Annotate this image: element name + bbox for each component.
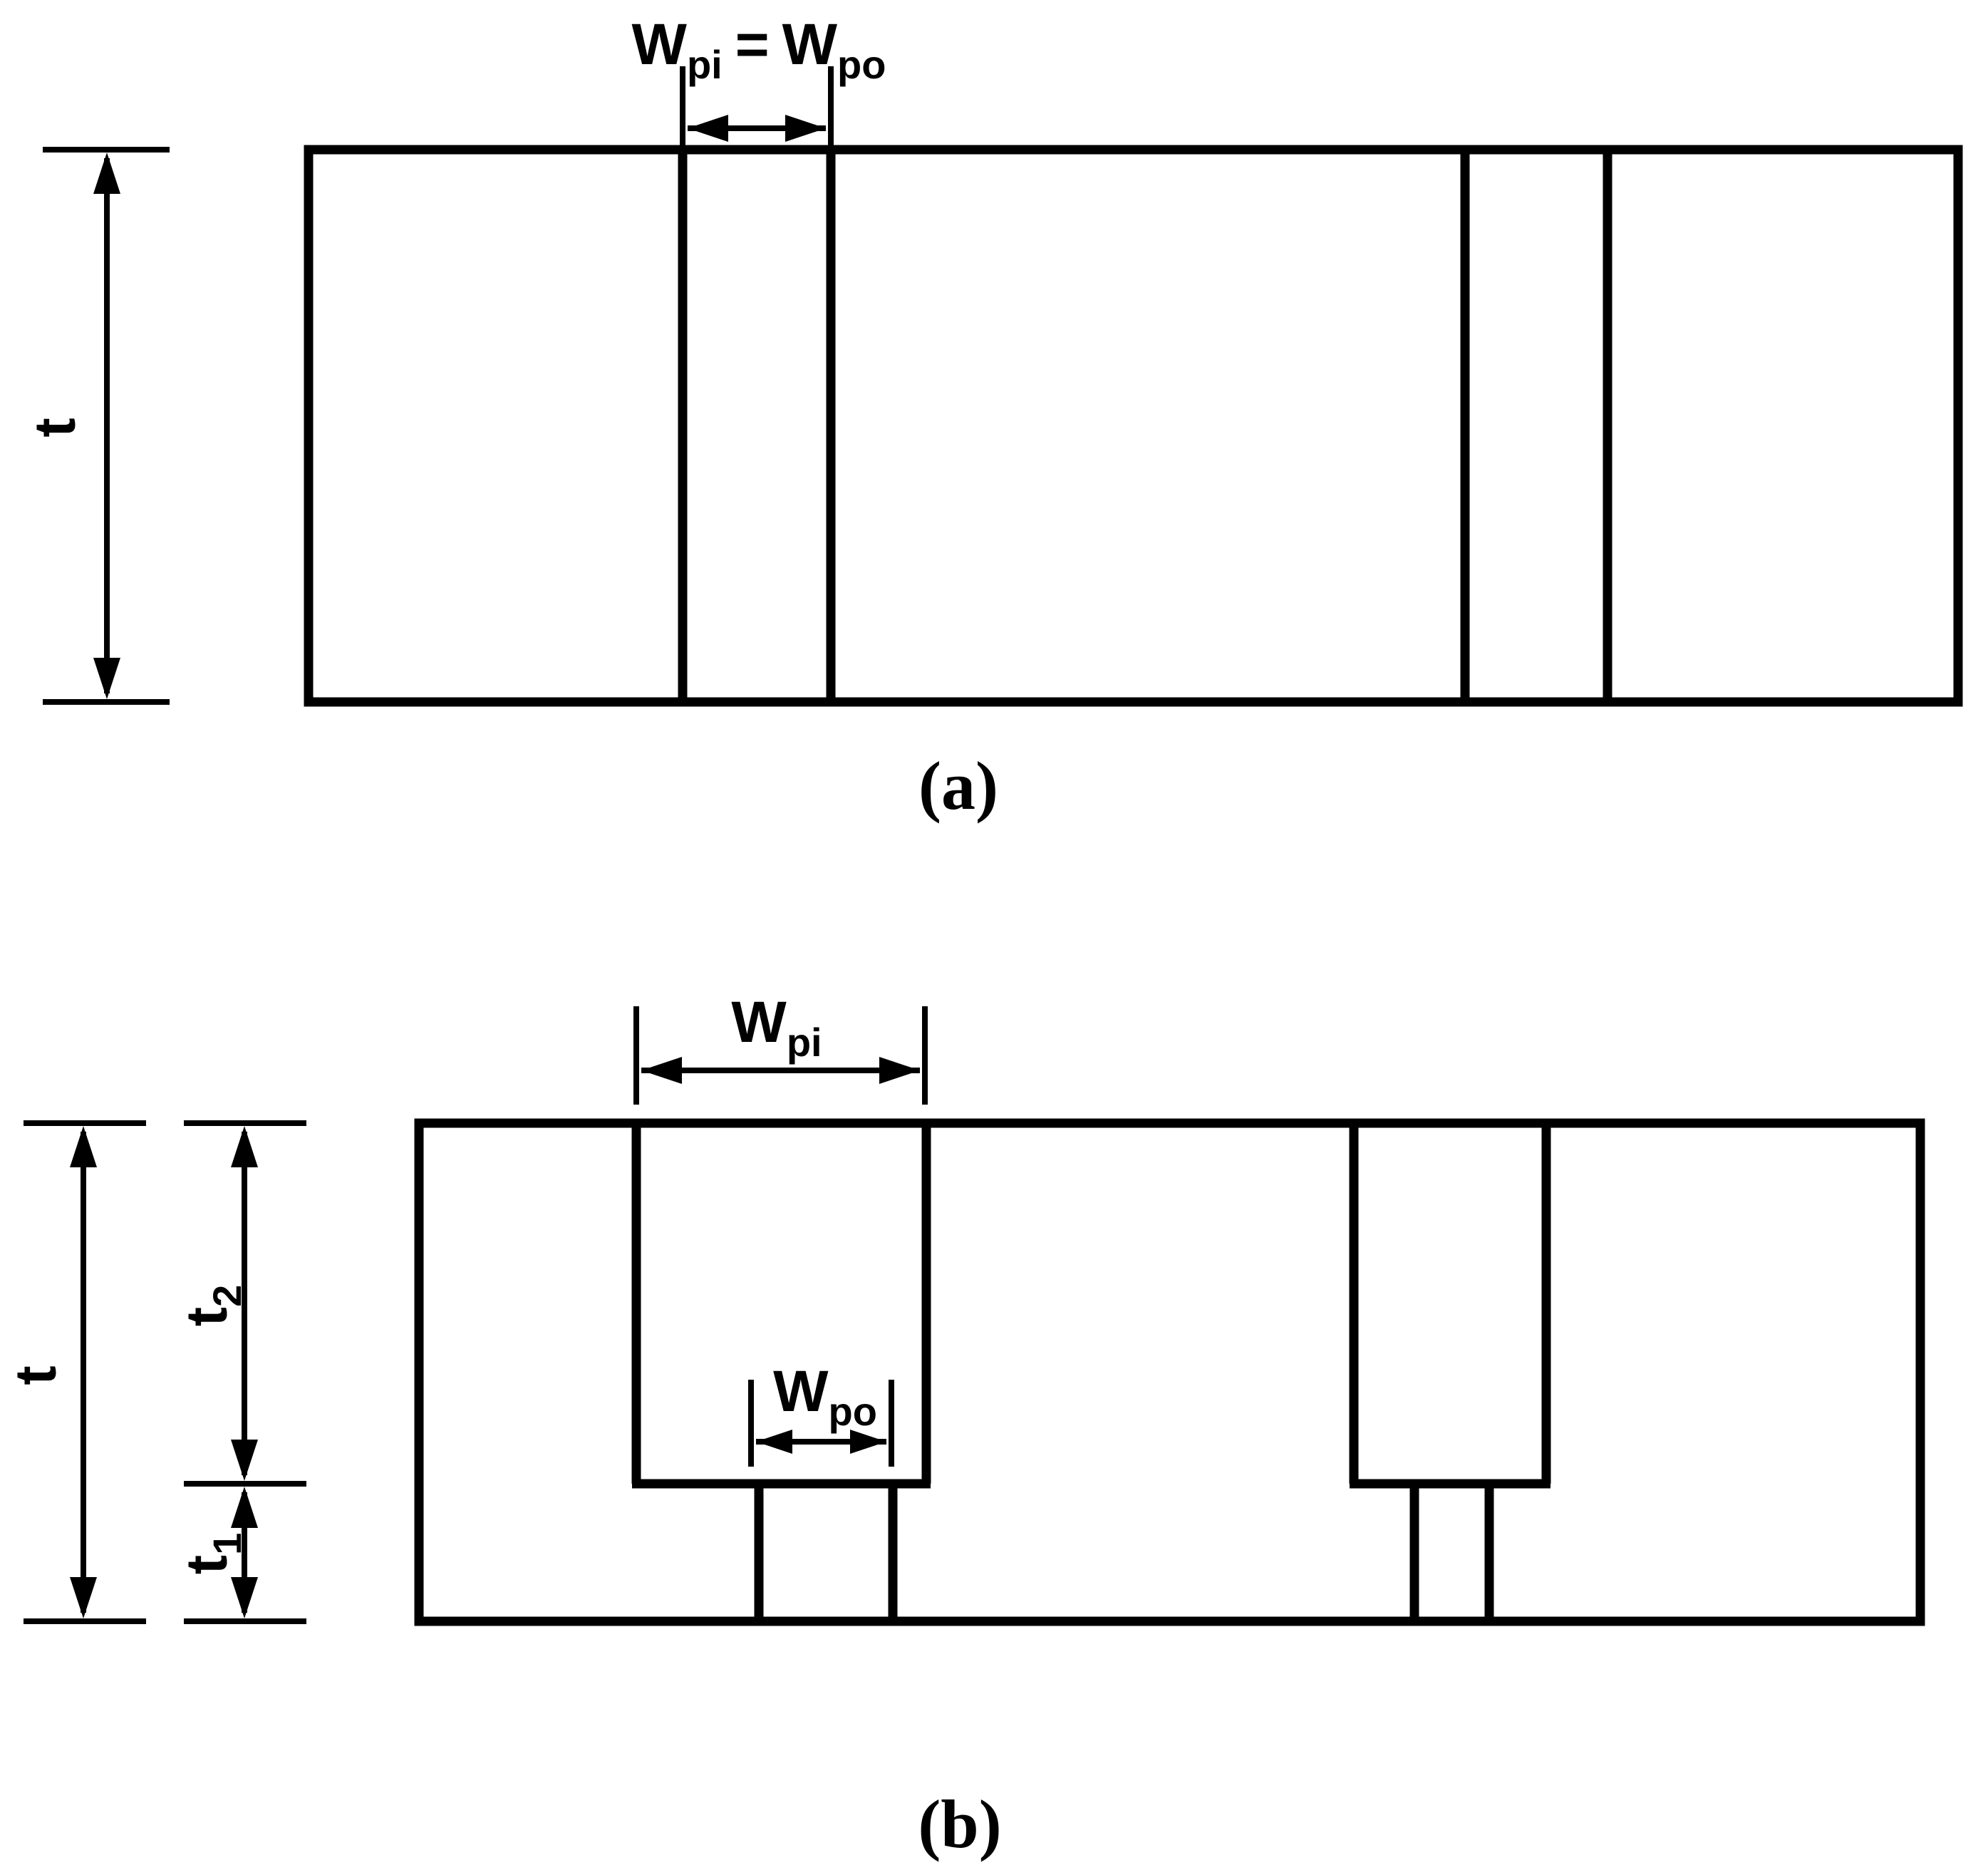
b-t2-sub: 2 [205, 1285, 249, 1307]
figure-background [0, 0, 1988, 1870]
b-wpi-sub: pi [787, 1020, 822, 1065]
a-width-dim-w2: W [782, 12, 838, 77]
a-thickness-dim-label: t [23, 418, 88, 437]
b-wpo-base: W [773, 1359, 829, 1424]
a-width-dim-sub1: pi [687, 42, 723, 87]
figure-canvas: Wpi=Wpo t (a) Wpi Wpo t t2 t1 (b) [0, 0, 1988, 1870]
panel-a-caption: (a) [918, 748, 998, 824]
a-width-dim-w1: W [632, 12, 688, 77]
a-width-dim-equals: = [735, 12, 770, 77]
figure-stage: Wpi=Wpo t (a) Wpi Wpo t t2 t1 (b) [0, 0, 1988, 1870]
b-wpi-base: W [731, 990, 787, 1055]
a-width-dim-sub2: po [837, 42, 886, 87]
b-t1-base: t [175, 1555, 239, 1574]
b-t1-sub: 1 [205, 1533, 249, 1555]
b-wpo-sub: po [828, 1389, 876, 1434]
b-t2-base: t [175, 1307, 239, 1326]
panel-b-caption: (b) [918, 1786, 1001, 1862]
b-t-dim-label: t [4, 1365, 68, 1385]
